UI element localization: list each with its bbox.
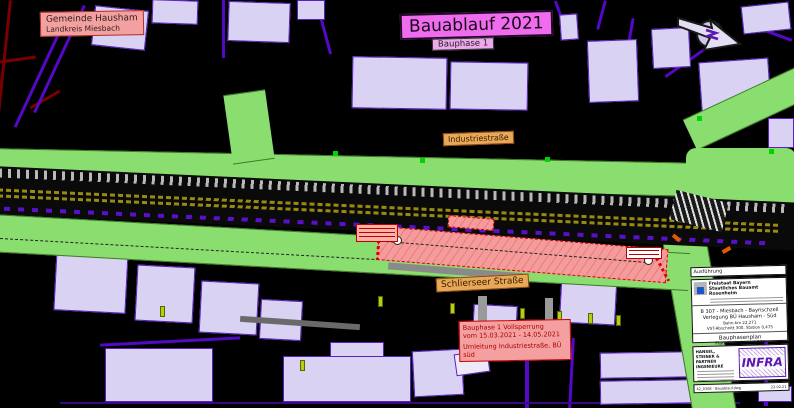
building [741,2,792,35]
street-lamp [160,306,165,317]
illegible-text-line [629,250,659,251]
plan-subtitle: Bauphase 1 [432,37,494,51]
building [199,281,260,336]
file-name: 42_0308 - Bauablauf.dwg [696,386,741,391]
firm-name-2: PARTNER INGENIEURE [696,358,735,369]
municipality-label: Gemeinde Hausham Landkreis Miesbach [40,10,144,37]
building [152,0,199,25]
building [450,61,529,110]
title-block-firm: HANSEL, STEINER & PARTNER INGENIEURE INF… [692,344,789,383]
parcel-line [596,0,607,30]
bavaria-logo-icon [694,282,707,295]
illegible-text-line [629,254,659,255]
title-block-file-row: 42_0308 - Bauablauf.dwg 22.02.21 [693,382,789,394]
title-block-main: Freistaat Bayern Staatliches Bauamt Rose… [691,277,789,343]
barrier-note-left [356,224,398,242]
bavaria-logo-inner [697,287,704,294]
building [135,265,196,324]
illegible-text-line [697,373,734,375]
building [559,13,579,40]
illegible-text-line [697,370,734,372]
plan-title: Bauablauf 2021 [400,10,553,40]
building [227,1,290,43]
agency-name-2: Staatliches Bauamt Rosenheim [709,285,784,297]
illegible-text-line [359,232,395,233]
plan-canvas: Gemeinde Hausham Landkreis Miesbach Baua… [0,0,794,408]
building [105,348,213,402]
closure-note-dates: vom 15.03.2021 - 14.05.2021 [463,330,567,340]
closure-note: Bauphase 1 Vollsperrung vom 15.03.2021 -… [459,319,572,362]
parcel-line [100,336,240,346]
infra-logo-icon: INFRA [738,347,786,378]
illegible-text-line [697,379,734,381]
street-lamp [588,313,593,324]
street-label-industriestrasse: Industriestraße [443,131,514,146]
street-lamp [450,303,455,314]
building [768,118,794,148]
infra-logo-text: INFRA [739,355,785,370]
agency-row: Freistaat Bayern Staatliches Bauamt Rose… [692,278,787,306]
signal-marker [545,157,550,162]
signal-marker [769,149,774,154]
road-side-street [223,89,274,164]
district-name: Landkreis Miesbach [46,23,138,34]
illegible-text-line [697,376,734,378]
closure-note-detour: Umleitung Industriestraße, BÜ süd [463,341,567,359]
illegible-text-line [710,300,783,303]
survey-line [0,0,12,132]
barrier-note-right [626,247,662,259]
signal-marker [697,116,702,121]
illegible-text-line [359,236,395,237]
signal-marker [420,158,425,163]
illegible-text-line [359,228,395,229]
north-arrow-icon [676,4,744,62]
parcel-line [222,0,225,58]
building [600,379,692,405]
signal-marker [333,151,338,156]
building [352,56,448,110]
title-block: Ausführung Freistaat Bayern Staatliches … [688,263,793,400]
file-date: 22.02.21 [771,384,787,388]
street-lamp [300,360,305,371]
street-lamp [520,308,525,319]
street-lamp [378,296,383,307]
title-block-header: Ausführung [690,265,786,278]
project-detail-2: VST-Abschnitt 300, Station 0,475 [693,324,787,334]
building [297,0,325,20]
street-lamp [616,315,621,326]
building [600,351,692,379]
building [587,39,639,103]
